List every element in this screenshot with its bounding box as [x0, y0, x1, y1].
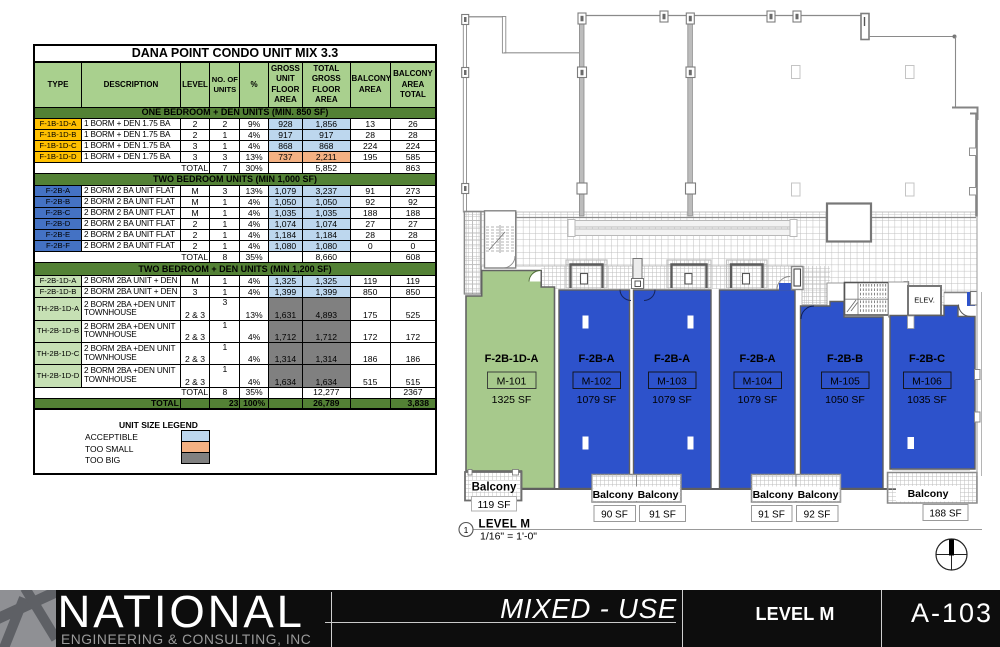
svg-text:Balcony: Balcony: [638, 489, 679, 501]
svg-text:F-2B-A: F-2B-A: [578, 353, 614, 365]
svg-text:1035 SF: 1035 SF: [907, 394, 947, 406]
svg-text:1079 SF: 1079 SF: [652, 394, 692, 406]
svg-text:F-2B-A: F-2B-A: [654, 353, 690, 365]
svg-text:1/16" = 1'-0": 1/16" = 1'-0": [480, 531, 537, 543]
svg-text:Balcony: Balcony: [753, 489, 794, 501]
svg-text:1325 SF: 1325 SF: [492, 394, 532, 406]
svg-text:M-105: M-105: [830, 376, 860, 388]
svg-text:1079 SF: 1079 SF: [577, 394, 617, 406]
svg-text:F-2B-A: F-2B-A: [739, 353, 775, 365]
svg-text:M-102: M-102: [582, 376, 612, 388]
svg-text:Balcony: Balcony: [798, 489, 839, 501]
svg-text:119 SF: 119 SF: [477, 499, 510, 511]
svg-text:ELEV.: ELEV.: [914, 296, 935, 305]
svg-text:90 SF: 90 SF: [601, 510, 628, 521]
svg-text:M-106: M-106: [912, 376, 942, 388]
svg-text:F-2B-C: F-2B-C: [909, 353, 945, 365]
svg-text:188 SF: 188 SF: [929, 509, 961, 520]
svg-text:1050 SF: 1050 SF: [825, 394, 865, 406]
svg-text:91 SF: 91 SF: [758, 510, 785, 521]
svg-text:1079 SF: 1079 SF: [738, 394, 778, 406]
svg-text:F-2B-1D-A: F-2B-1D-A: [485, 353, 539, 365]
svg-text:91 SF: 91 SF: [649, 510, 676, 521]
svg-text:1: 1: [464, 525, 469, 535]
svg-text:Balcony: Balcony: [908, 488, 949, 500]
svg-text:LEVEL M: LEVEL M: [479, 519, 531, 531]
svg-text:Balcony: Balcony: [472, 482, 517, 494]
svg-text:92 SF: 92 SF: [804, 510, 831, 521]
svg-text:M-101: M-101: [497, 376, 527, 388]
svg-text:Balcony: Balcony: [593, 489, 634, 501]
svg-text:M-103: M-103: [657, 376, 687, 388]
svg-text:M-104: M-104: [743, 376, 773, 388]
svg-text:F-2B-B: F-2B-B: [827, 353, 863, 365]
